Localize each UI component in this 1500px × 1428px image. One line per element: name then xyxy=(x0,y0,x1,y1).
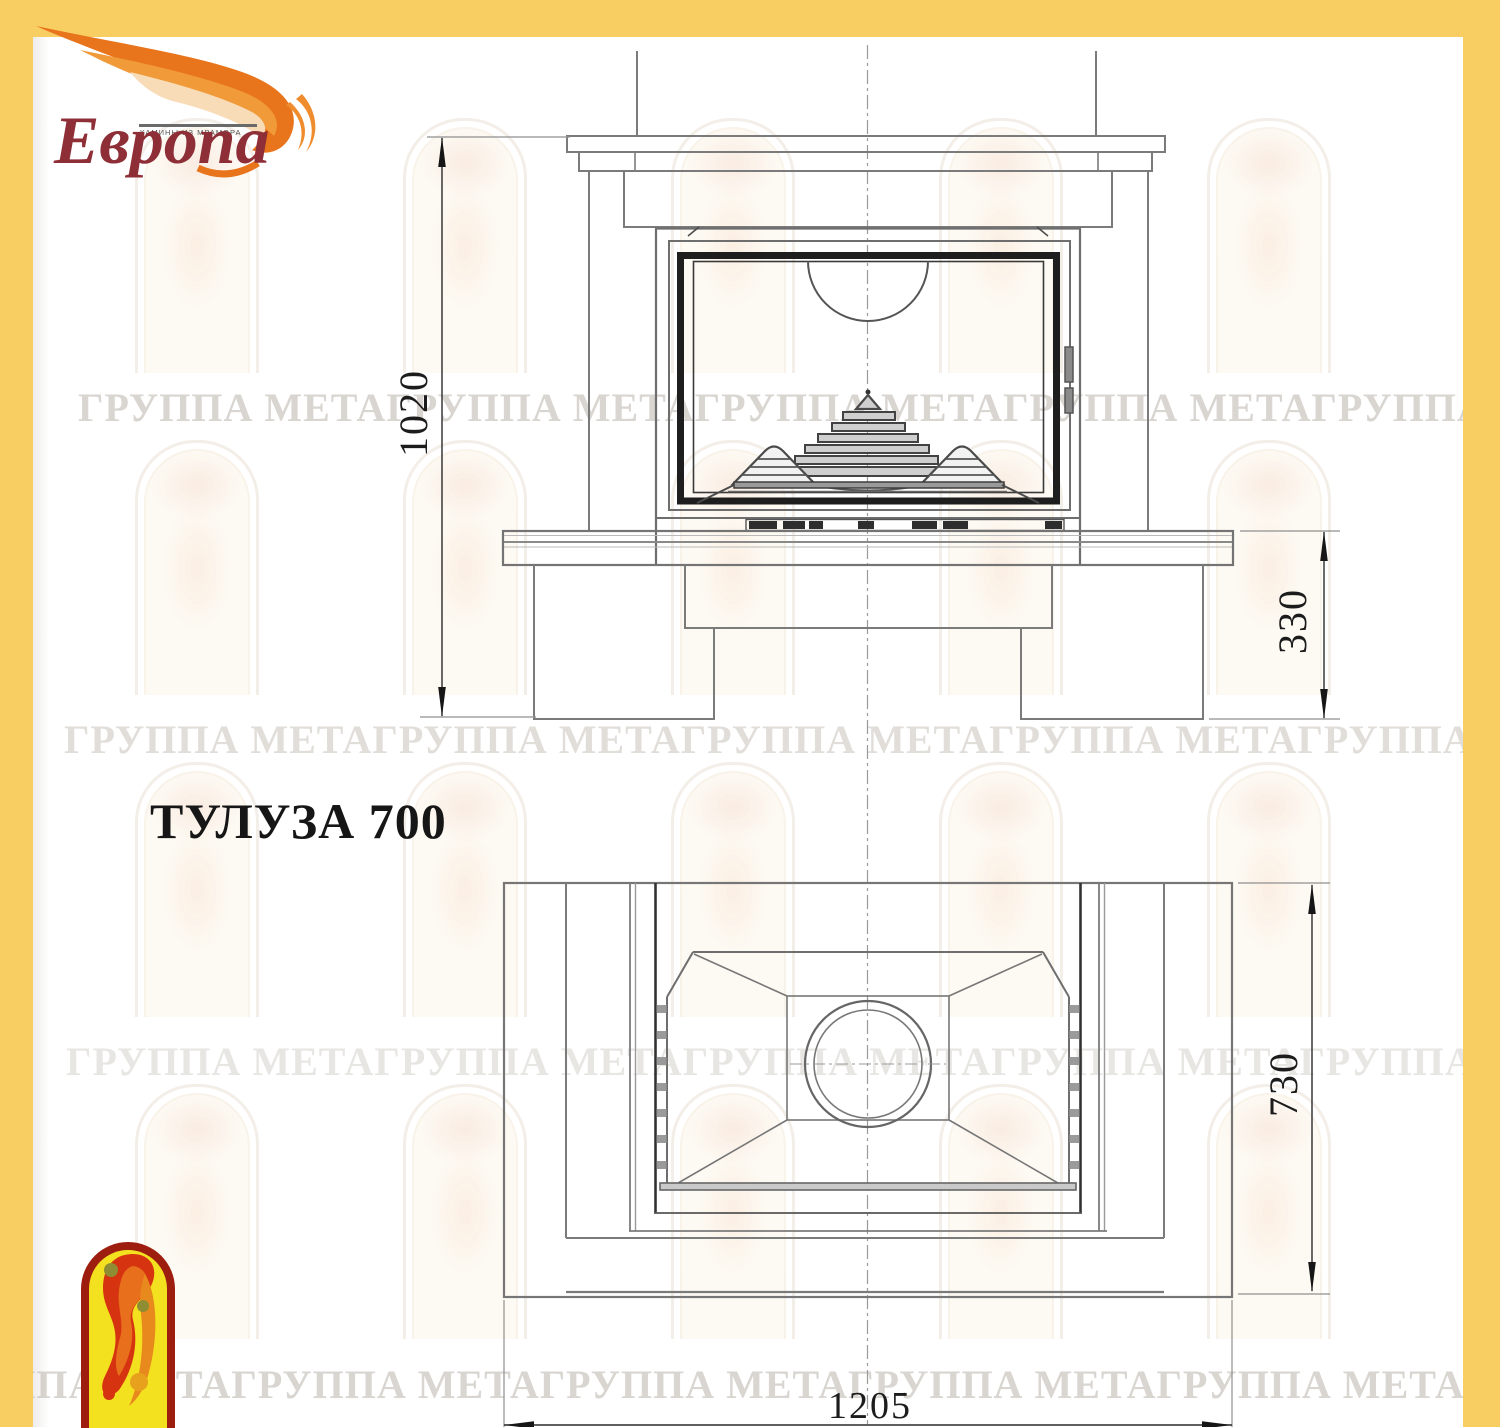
svg-text:Европа: Европа xyxy=(53,102,270,178)
svg-text:330: 330 xyxy=(1270,588,1315,654)
svg-text:1205: 1205 xyxy=(828,1385,912,1427)
svg-text:730: 730 xyxy=(1261,1051,1306,1117)
svg-text:1020: 1020 xyxy=(391,369,436,457)
